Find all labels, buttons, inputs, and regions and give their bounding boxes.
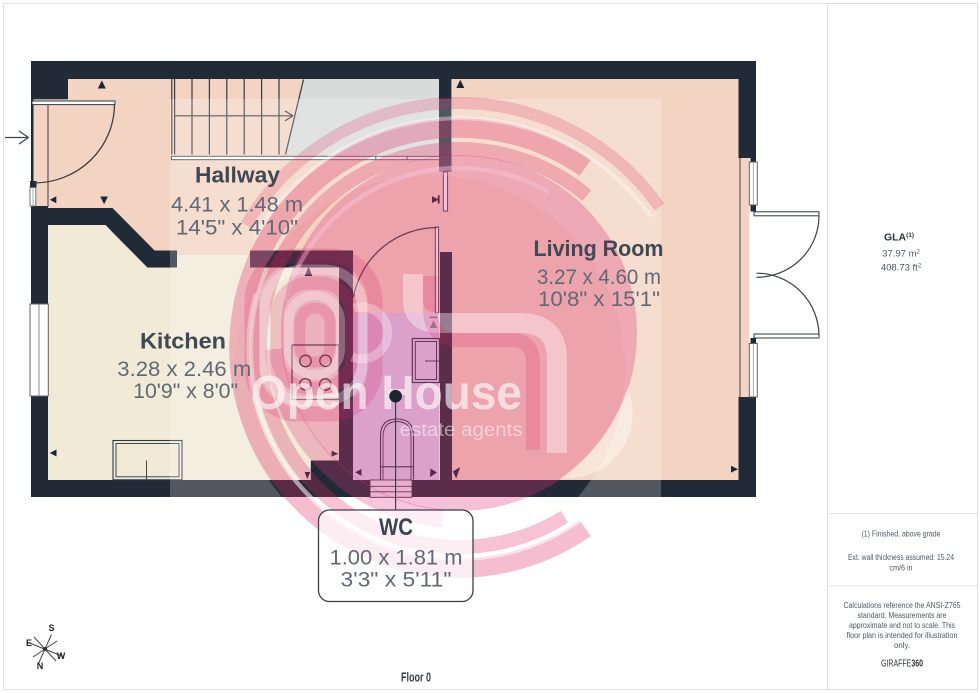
svg-text:cm/6 in: cm/6 in [890, 563, 913, 573]
svg-text:GIRAFFE360: GIRAFFE360 [881, 659, 923, 670]
svg-text:Open House: Open House [251, 366, 522, 420]
svg-text:Ext. wall thickness assumed: 1: Ext. wall thickness assumed: 15.24 [848, 552, 954, 562]
svg-text:WC: WC [379, 514, 413, 541]
svg-text:Hallway: Hallway [195, 163, 281, 188]
svg-text:floor plan is intended for ill: floor plan is intended for illustration [847, 630, 958, 640]
svg-text:(1) Finished, above grade: (1) Finished, above grade [862, 529, 941, 539]
svg-text:37.97 m2: 37.97 m2 [882, 249, 920, 260]
svg-text:E: E [26, 638, 32, 648]
svg-text:estate agents: estate agents [400, 420, 523, 441]
svg-text:4.41 x 1.48 m: 4.41 x 1.48 m [171, 193, 303, 217]
svg-text:Calculations reference the ANS: Calculations reference the ANSI-Z765 [844, 600, 961, 610]
svg-text:10'9" x 8'0": 10'9" x 8'0" [133, 379, 238, 403]
svg-text:standard. Measurements are: standard. Measurements are [858, 610, 947, 620]
svg-text:Living Room: Living Room [534, 236, 664, 261]
svg-text:Kitchen: Kitchen [140, 329, 226, 354]
svg-text:3'3" x 5'11": 3'3" x 5'11" [341, 568, 452, 592]
svg-text:Floor 0: Floor 0 [401, 670, 431, 685]
svg-text:3.27 x 4.60 m: 3.27 x 4.60 m [537, 265, 661, 289]
svg-text:3.28 x 2.46 m: 3.28 x 2.46 m [117, 357, 251, 381]
svg-text:10'8" x 15'1": 10'8" x 15'1" [538, 287, 660, 311]
svg-text:W: W [57, 651, 66, 661]
svg-text:S: S [48, 623, 54, 633]
svg-text:only.: only. [894, 640, 910, 650]
svg-text:408.73 ft2: 408.73 ft2 [881, 263, 922, 274]
svg-text:N: N [37, 661, 44, 671]
svg-text:approximate and not to scale.: approximate and not to scale. This [849, 620, 955, 630]
svg-text:14'5" x 4'10": 14'5" x 4'10" [176, 216, 298, 240]
svg-text:1.00 x 1.81 m: 1.00 x 1.81 m [330, 545, 463, 569]
